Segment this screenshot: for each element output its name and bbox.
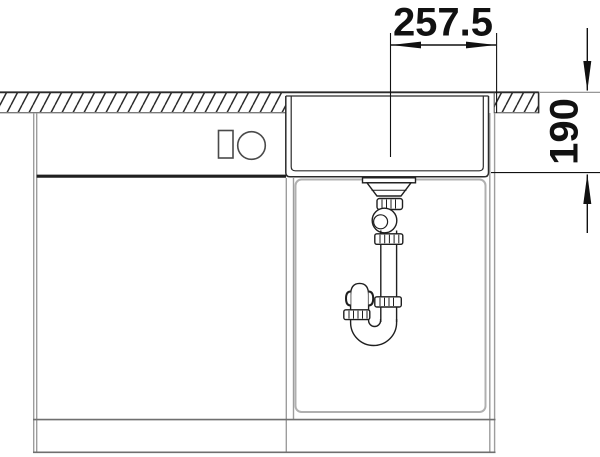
dim-v-arrow-down — [583, 61, 591, 91]
trap-coupling — [344, 310, 370, 320]
drain-flange-taper — [367, 183, 411, 196]
elbow-ball-outer — [372, 208, 397, 233]
dim-v-arrow-up — [583, 174, 591, 204]
dimension-vertical: 190 — [491, 28, 600, 233]
pipe-coupling-lower — [375, 297, 402, 307]
drain-siphon — [344, 178, 416, 346]
worktop-right-hatch — [494, 93, 538, 113]
basin-inner-wall — [291, 96, 483, 171]
sink-section-drawing: 257.5 190 — [0, 0, 600, 457]
drain-flange-disc — [363, 178, 416, 183]
trap-u-bend-inner — [369, 319, 381, 327]
worktop-left-hatch — [0, 93, 286, 113]
tailpiece-nut — [377, 199, 403, 210]
dimension-horizontal: 257.5 — [391, 1, 497, 158]
trap-cap-dome — [351, 283, 369, 310]
dim-h-label: 257.5 — [393, 1, 493, 45]
trap-cap-knurl-left — [346, 292, 351, 306]
basin-outer-wall — [286, 96, 489, 177]
cabinet-front — [37, 131, 286, 177]
trap-cap-knurl-right — [369, 292, 374, 306]
base-cabinet — [33, 113, 496, 453]
technical-drawing-canvas: 257.5 190 — [0, 0, 600, 457]
knob-rectangle — [219, 131, 234, 159]
dim-v-label: 190 — [543, 98, 587, 165]
sink-basin — [286, 96, 489, 177]
knob-circle — [238, 132, 266, 160]
trap-u-bend-outer — [351, 319, 397, 346]
worktop — [0, 92, 539, 114]
